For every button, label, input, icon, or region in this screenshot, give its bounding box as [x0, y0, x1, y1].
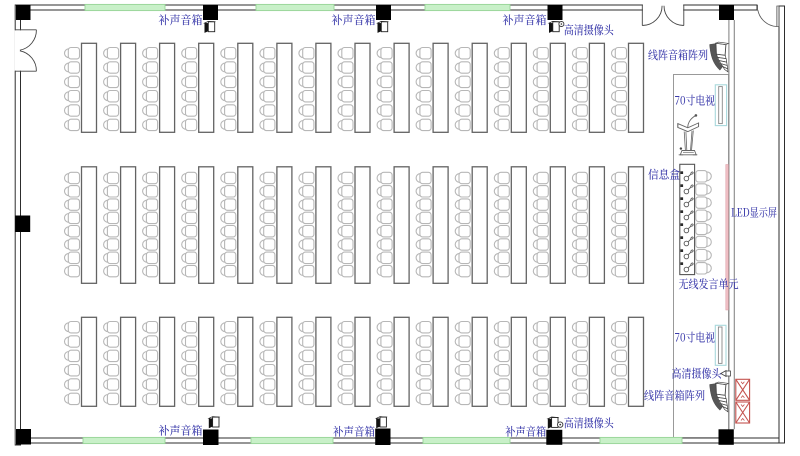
svg-text:补声音箱: 补声音箱 [159, 12, 203, 28]
svg-text:70寸电视: 70寸电视 [675, 330, 716, 346]
svg-text:LED显示屏: LED显示屏 [731, 205, 777, 221]
svg-text:线阵音箱阵列: 线阵音箱阵列 [644, 388, 705, 404]
svg-text:高清摄像头: 高清摄像头 [564, 415, 614, 431]
svg-text:信息盒: 信息盒 [648, 167, 680, 183]
svg-text:补声音箱: 补声音箱 [505, 424, 546, 440]
svg-text:线阵音箱阵列: 线阵音箱阵列 [648, 47, 708, 63]
svg-text:补声音箱: 补声音箱 [332, 12, 376, 28]
svg-text:补声音箱: 补声音箱 [333, 424, 375, 440]
svg-text:高清摄像头: 高清摄像头 [564, 22, 614, 38]
svg-text:70寸电视: 70寸电视 [675, 93, 716, 109]
svg-text:无线发言单元: 无线发言单元 [679, 276, 739, 292]
svg-text:补声音箱: 补声音箱 [159, 423, 203, 439]
svg-text:高清摄像头: 高清摄像头 [672, 366, 722, 382]
svg-text:补声音箱: 补声音箱 [503, 12, 547, 28]
